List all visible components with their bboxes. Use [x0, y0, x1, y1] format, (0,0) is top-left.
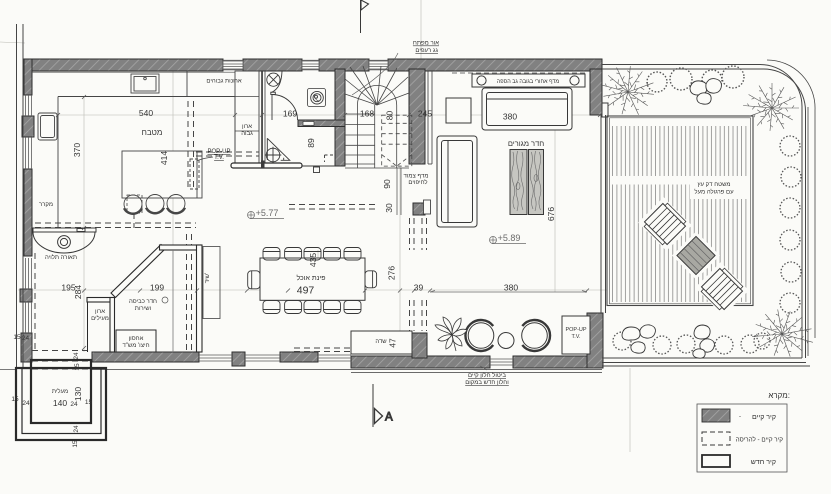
svg-text:מדף צמוד: מדף צמוד — [404, 174, 429, 180]
svg-text:ארון: ארון — [242, 124, 252, 130]
svg-text:גבוה: גבוה — [241, 131, 253, 137]
svg-text:130: 130 — [73, 387, 83, 401]
svg-text:פינת אוכל: פינת אוכל — [296, 274, 325, 282]
svg-text:אחסון: אחסון — [129, 336, 144, 342]
svg-text:199: 199 — [150, 283, 164, 293]
svg-text:לחיפוים: לחיפוים — [408, 178, 427, 186]
svg-text:קיר חדש: קיר חדש — [751, 459, 776, 466]
svg-text:מקרר: מקרר — [39, 202, 53, 208]
svg-text:89: 89 — [306, 138, 316, 148]
svg-text:47: 47 — [388, 338, 398, 348]
svg-text:אור מפתח: אור מפתח — [413, 41, 439, 47]
svg-text:תאורה תלויה: תאורה תלויה — [45, 253, 77, 261]
svg-text:80: 80 — [385, 111, 395, 121]
svg-text:24: 24 — [73, 352, 80, 360]
svg-text:676: 676 — [546, 207, 556, 221]
svg-text:497: 497 — [297, 285, 315, 297]
svg-text:276: 276 — [387, 266, 397, 280]
svg-text:380: 380 — [503, 112, 517, 122]
svg-text:משטח דק עץ: משטח דק עץ — [697, 182, 730, 188]
svg-text:A: A — [385, 412, 393, 424]
svg-text:ביטול חלון קיים: ביטול חלון קיים — [468, 371, 506, 379]
svg-text:24: 24 — [70, 401, 78, 408]
svg-text:414: 414 — [159, 151, 169, 165]
svg-text:284: 284 — [73, 285, 83, 299]
svg-text:וחלון חדש במקום: וחלון חדש במקום — [465, 378, 509, 386]
svg-text:POP-UP: POP-UP — [565, 327, 586, 333]
svg-text:T.V.: T.V. — [214, 155, 224, 161]
svg-text:מעלית: מעלית — [52, 387, 68, 395]
svg-text:380: 380 — [504, 283, 518, 293]
svg-text:חדר כביסה: חדר כביסה — [129, 299, 157, 305]
svg-text:168: 168 — [360, 109, 374, 119]
svg-text:גג רעפים: גג רעפים — [415, 48, 438, 54]
svg-text:T.V.: T.V. — [572, 334, 581, 340]
svg-text:39: 39 — [414, 283, 424, 293]
svg-text:ארונות גבוהים: ארונות גבוהים — [206, 79, 241, 85]
svg-text:מטבח: מטבח — [142, 128, 163, 137]
svg-text:15: 15 — [85, 399, 93, 406]
svg-text:+5.77: +5.77 — [256, 208, 279, 218]
svg-text:+5.89: +5.89 — [498, 233, 521, 243]
svg-text:15: 15 — [13, 334, 21, 341]
svg-text:245: 245 — [418, 109, 432, 119]
svg-text:30: 30 — [384, 203, 394, 213]
svg-text:24: 24 — [22, 400, 30, 407]
svg-text:מקרא:: מקרא: — [768, 391, 790, 400]
svg-text:-: - — [739, 414, 741, 420]
svg-text:435: 435 — [308, 253, 318, 267]
svg-text:140: 140 — [53, 398, 67, 408]
svg-text:15: 15 — [11, 396, 19, 403]
svg-text:24: 24 — [73, 425, 80, 433]
svg-text:עם פרגולה מעל: עם פרגולה מעל — [694, 188, 734, 196]
svg-text:קיר קיים - להריסה: קיר קיים - להריסה — [736, 436, 784, 444]
svg-text:24: 24 — [22, 335, 30, 342]
svg-text:חדר מגורים: חדר מגורים — [508, 139, 544, 148]
svg-text:שדה: שדה — [375, 339, 387, 345]
svg-text:ארון: ארון — [95, 309, 105, 315]
svg-text:370: 370 — [72, 143, 82, 157]
svg-text:מדף אחורי בגובה גב הספה: מדף אחורי בגובה גב הספה — [497, 79, 560, 85]
svg-text:מעילים: מעילים — [91, 314, 109, 322]
svg-text:540: 540 — [139, 108, 153, 118]
svg-text:15: 15 — [72, 440, 79, 448]
svg-text:קיר קיים: קיר קיים — [752, 414, 776, 421]
svg-text:169: 169 — [283, 109, 297, 119]
svg-text:ושירות: ושירות — [135, 306, 152, 312]
svg-text:90: 90 — [382, 179, 392, 189]
svg-text:15: 15 — [74, 363, 81, 371]
svg-text:חיצו' מש"ד: חיצו' מש"ד — [122, 343, 149, 349]
svg-text:שיד': שיד' — [205, 273, 211, 283]
